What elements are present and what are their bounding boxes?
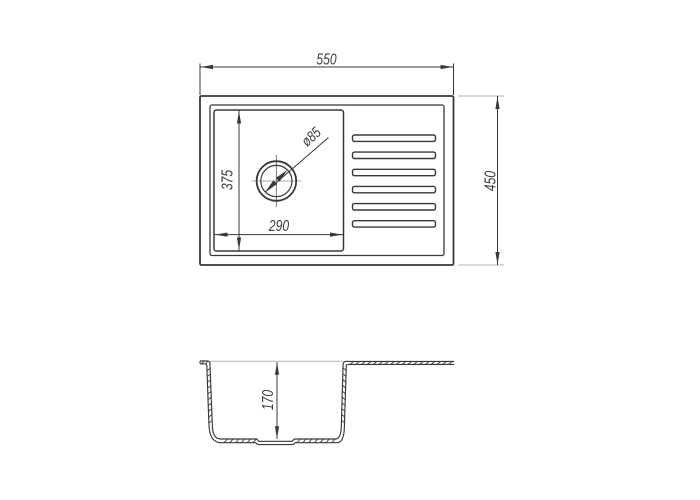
svg-text:550: 550: [316, 50, 336, 68]
svg-text:375: 375: [218, 170, 236, 190]
svg-text:450: 450: [481, 171, 499, 191]
svg-text:290: 290: [268, 217, 289, 235]
svg-text:170: 170: [259, 390, 277, 410]
